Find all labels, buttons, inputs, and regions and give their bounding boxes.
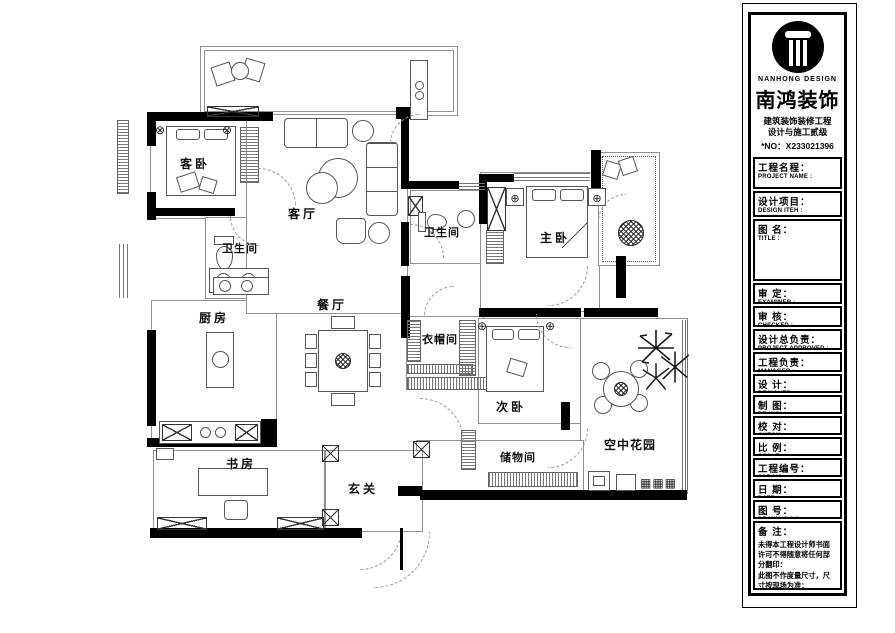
field-examiner: 审 定： EXAMINER : — [753, 283, 842, 304]
stove-burner — [200, 427, 211, 438]
field-label-cn: 审 核： — [758, 309, 837, 323]
chair — [369, 353, 381, 368]
brand-name-en: NANHONG DESIGN — [753, 76, 842, 83]
chair — [369, 334, 381, 349]
chair — [331, 393, 355, 406]
wall-segment — [147, 192, 156, 220]
field-manager: 工程负责： MANAGER : — [753, 352, 842, 372]
closet — [486, 230, 504, 264]
field-label-en: DESIGN ITEH : — [758, 208, 837, 214]
table-centerpiece — [614, 382, 628, 396]
field-label-en: JOB NO. : — [758, 475, 837, 477]
centerpiece — [335, 353, 351, 369]
wall-segment — [401, 222, 409, 266]
field-label-en: MANAGER : — [758, 369, 837, 372]
field-label-cn: 工程名程： — [758, 160, 837, 174]
field-designer: 设 计： DESIGNER : — [753, 374, 842, 393]
wardrobe — [240, 127, 259, 183]
desk-chair — [224, 500, 248, 520]
field-project-approved: 设计总负责： PROJECT APPROVED : — [753, 329, 842, 350]
field-label-cn: 校 对： — [758, 419, 837, 433]
ceiling-light-icon: ⊗ — [155, 124, 165, 136]
lamp-icon: ⊕ — [510, 193, 519, 205]
window — [157, 517, 207, 530]
field-checked: 审 核： CHECKED : — [753, 306, 842, 327]
window — [207, 106, 259, 117]
column — [413, 441, 430, 458]
field-label-cn: 审 定： — [758, 286, 837, 300]
window — [277, 517, 324, 530]
field-label-cn: 图 号： — [758, 503, 837, 517]
pillow — [176, 129, 200, 140]
side-table — [368, 222, 390, 244]
field-label-en: DESIGNER : — [758, 391, 837, 393]
nightstand: ⊕ — [506, 188, 524, 206]
room-label-second-bedroom: 次卧 — [496, 398, 526, 415]
room-label-guest-bedroom: 客卧 — [180, 155, 210, 172]
field-label-cn: 日 期： — [758, 482, 837, 496]
field-label-en: CHECKED : — [758, 323, 837, 327]
field-check: 校 对： CHECK : — [753, 416, 842, 435]
column — [322, 509, 339, 526]
wall-segment — [616, 256, 626, 298]
remarks-line-1: 未得本工程设计师书面许可不得随意将任何部分翻印： — [758, 540, 837, 569]
wall-segment — [591, 150, 601, 192]
wall-segment — [420, 490, 687, 500]
shelf — [488, 472, 578, 487]
wall-segment — [147, 330, 156, 426]
field-job-no: 工程编号： JOB NO. : — [753, 458, 842, 477]
company-logo: NANHONG DESIGN 南鸿装饰 建筑装饰装修工程 设计与施工贰级 *NO… — [753, 17, 842, 156]
cabinet — [487, 187, 506, 231]
field-label-en: PROJECT NAME : — [758, 174, 837, 180]
wall-segment — [261, 419, 277, 447]
room-label-study: 书房 — [226, 455, 256, 472]
room-label-living-room: 客厅 — [288, 205, 318, 222]
room-label-master-bedroom: 主卧 — [540, 229, 570, 246]
brand-name-cn: 南鸿装饰 — [753, 84, 842, 113]
pillow — [532, 189, 556, 201]
room-label-cloakroom: 衣帽间 — [422, 331, 458, 347]
wardrobe — [407, 377, 491, 390]
field-label-cn: 比 例： — [758, 440, 837, 454]
floor-plan: ⊗ ⊗ ⊕ ⊕ — [0, 0, 740, 633]
door-swing — [420, 398, 464, 442]
room-label-foyer: 玄关 — [348, 480, 378, 497]
lamp-icon: ⊕ — [477, 320, 487, 332]
sink — [219, 280, 231, 292]
cabinet — [235, 424, 258, 441]
field-scale: 比 例： SCALE : — [753, 437, 842, 456]
room-label-sky-garden: 空中花园 — [604, 436, 656, 453]
coffee-table — [306, 172, 338, 204]
room-label-bathroom-2: 卫生间 — [424, 224, 460, 240]
field-drawn: 制 图： DRAWN : — [753, 395, 842, 414]
nightstand: ⊕ — [588, 188, 606, 206]
window — [514, 173, 590, 181]
field-label-en: DRAWN : — [758, 412, 837, 414]
field-label-cn: 设 计： — [758, 377, 837, 391]
pillow — [560, 189, 584, 201]
desk — [198, 468, 268, 496]
field-date: 日 期： DATE : — [753, 479, 842, 498]
pillow — [492, 329, 514, 340]
island-sink — [212, 351, 229, 368]
side-table — [352, 120, 374, 142]
plant-pot — [415, 81, 424, 90]
tv-cabinet — [410, 60, 428, 120]
door-swing — [424, 286, 454, 316]
field-project-name: 工程名程： PROJECT NAME : — [753, 157, 842, 189]
balcony-table — [231, 62, 249, 80]
entry-door-leaf — [400, 528, 403, 570]
field-label-cn: 设计总负责： — [758, 332, 837, 346]
field-label-cn: 制 图： — [758, 398, 837, 412]
field-label-en: DRAWING NO. : — [758, 517, 837, 519]
bay-window — [117, 120, 129, 194]
window — [459, 183, 485, 190]
field-label-cn: 设计项目： — [758, 194, 837, 208]
sink — [241, 280, 253, 292]
window — [682, 320, 688, 490]
title-block: NANHONG DESIGN 南鸿装饰 建筑装饰装修工程 设计与施工贰级 *NO… — [742, 3, 857, 608]
washer-door — [593, 476, 605, 486]
chair — [305, 372, 317, 387]
chair — [369, 372, 381, 387]
title-block-inner: NANHONG DESIGN 南鸿装饰 建筑装饰装修工程 设计与施工贰级 *NO… — [748, 12, 847, 596]
wall-segment — [401, 181, 459, 189]
field-drawing-no: 图 号： DRAWING NO. : — [753, 500, 842, 519]
column-capital-icon — [785, 31, 811, 38]
wardrobe — [407, 320, 421, 362]
ceiling-light-icon: ⊗ — [222, 124, 232, 136]
armchair — [336, 218, 366, 244]
field-label-en: SCALE : — [758, 454, 837, 456]
stove-burner — [215, 427, 226, 438]
washer — [588, 471, 610, 491]
cabinet — [156, 448, 174, 460]
wall-segment — [584, 308, 658, 317]
company-logo-icon — [772, 21, 824, 73]
sofa-long — [366, 142, 398, 216]
room-label-dining-room: 餐厅 — [317, 296, 347, 313]
remarks-line-2: 此图不作度量尺寸，尺寸按现场为准： — [758, 571, 837, 590]
wall-segment — [479, 174, 487, 224]
chair — [305, 334, 317, 349]
wall-segment — [398, 486, 422, 496]
chair — [305, 353, 317, 368]
utility-box — [616, 474, 636, 491]
sofa — [284, 118, 348, 148]
certification-text: 建筑装饰装修工程 设计与施工贰级 — [753, 116, 842, 138]
cert-line-1: 建筑装饰装修工程 — [753, 116, 842, 127]
field-design-item: 设计项目： DESIGN ITEH : — [753, 191, 842, 217]
chair — [331, 316, 355, 329]
plant-pot — [415, 91, 424, 100]
wall-segment — [147, 208, 235, 216]
cabinet — [162, 424, 192, 441]
plant-icon — [638, 360, 674, 396]
field-title: 图 名： TITLE : — [753, 219, 842, 281]
field-label-cn: 工程编号： — [758, 461, 837, 475]
column — [322, 445, 339, 462]
license-number: *NO：X233021396 — [753, 140, 842, 152]
pillow — [518, 329, 540, 340]
room-label-kitchen: 厨房 — [199, 309, 229, 326]
field-label-en: DATE : — [758, 496, 837, 498]
field-label-cn: 工程负责： — [758, 355, 837, 369]
wardrobe — [407, 364, 473, 374]
room-label-bathroom-1: 卫生间 — [222, 240, 258, 256]
vent-grid-icon: ▦▦▦ — [640, 477, 677, 489]
room-label-storage: 储物间 — [500, 449, 536, 465]
remarks-title: 备 注： — [758, 524, 837, 538]
field-label-cn: 图 名： — [758, 222, 837, 236]
window — [119, 244, 128, 298]
remarks-box: 备 注： 未得本工程设计师书面许可不得随意将任何部分翻印： 此图不作度量尺寸，尺… — [753, 521, 842, 590]
column-shaft-icon — [789, 40, 807, 66]
round-mat — [618, 220, 644, 246]
lamp-icon: ⊕ — [592, 193, 601, 205]
field-label-en: TITLE : — [758, 236, 837, 242]
field-label-en: PROJECT APPROVED : — [758, 346, 837, 350]
field-label-en: EXAMINER : — [758, 300, 837, 304]
cert-line-2: 设计与施工贰级 — [753, 127, 842, 138]
floor-plan-sheet: ⊗ ⊗ ⊕ ⊕ — [0, 0, 895, 633]
field-label-en: CHECK : — [758, 433, 837, 435]
wall-segment — [561, 402, 570, 430]
